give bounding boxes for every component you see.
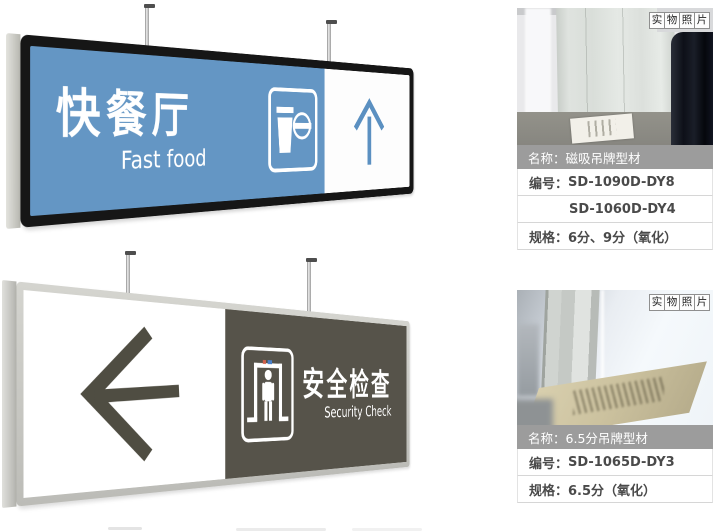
spec-row-code: 编号：SD-1065D-DY3 bbox=[517, 449, 713, 476]
fast-food-sign: 快餐厅 Fast food bbox=[6, 33, 413, 229]
rod-mount-cap bbox=[306, 258, 317, 262]
arrow-panel bbox=[24, 290, 225, 498]
badge-char: 照 bbox=[679, 12, 695, 29]
arrow-panel bbox=[325, 69, 410, 194]
spec-row-code-2: SD-1060D-DY4 bbox=[517, 196, 713, 223]
spec-row-size: 规格：6分、9分（氧化） bbox=[517, 223, 713, 250]
badge-char: 物 bbox=[664, 12, 680, 29]
rod-mount-cap bbox=[125, 251, 136, 255]
spec-label: 规格： bbox=[529, 480, 568, 499]
sign-side-panel bbox=[6, 33, 20, 229]
badge-char: 物 bbox=[664, 294, 680, 311]
fast-food-panel: 快餐厅 Fast food bbox=[30, 46, 325, 216]
badge-char: 实 bbox=[649, 294, 665, 311]
spec-row-name: 名称：磁吸吊牌型材 bbox=[517, 145, 713, 169]
spec-value: 6.5分吊牌型材 bbox=[566, 428, 648, 447]
hanging-rod bbox=[126, 254, 130, 294]
spec-value: 磁吸吊牌型材 bbox=[566, 148, 641, 167]
cropped-shadow bbox=[108, 527, 142, 530]
photo-background bbox=[517, 399, 553, 425]
sign-subtitle-en: Fast food bbox=[54, 147, 206, 176]
spec-value: 6.5分（氧化） bbox=[568, 480, 656, 499]
spec-label: 编号： bbox=[529, 173, 568, 192]
product-photo-1: 实 物 照 片 bbox=[517, 8, 713, 145]
photo-background bbox=[517, 324, 539, 396]
sign-side-panel bbox=[2, 280, 16, 508]
rod-mount-cap bbox=[144, 4, 155, 8]
real-photo-badge: 实 物 照 片 bbox=[650, 294, 710, 311]
product-photo-2: 实 物 照 片 bbox=[517, 290, 713, 425]
spec-value: 6分、9分（氧化） bbox=[568, 227, 677, 246]
sign-frame: 快餐厅 Fast food bbox=[20, 34, 413, 227]
left-arrow-icon bbox=[78, 321, 185, 466]
spec-label: 规格： bbox=[529, 227, 568, 246]
product-card-1: 实 物 照 片 名称：磁吸吊牌型材 编号：SD-1090D-DY8 SD-106… bbox=[517, 8, 713, 250]
badge-char: 实 bbox=[649, 12, 665, 29]
sign-title-cn: 快餐厅 bbox=[56, 88, 193, 142]
sign-title-cn: 安全检查 bbox=[302, 367, 391, 401]
spec-row-size: 规格：6.5分（氧化） bbox=[517, 476, 713, 503]
spec-label: 名称： bbox=[528, 428, 566, 447]
sign-subtitle-en: Security Check bbox=[302, 404, 391, 421]
plate-engraving bbox=[573, 376, 664, 415]
badge-char: 片 bbox=[694, 294, 710, 311]
security-check-sign: 安全检查 Security Check bbox=[2, 280, 409, 508]
spec-row-name: 名称：6.5分吊牌型材 bbox=[517, 425, 713, 449]
badge-char: 照 bbox=[679, 294, 695, 311]
rod-mount-cap bbox=[326, 20, 337, 24]
security-text-block: 安全检查 Security Check bbox=[302, 367, 391, 421]
product-card-2: 实 物 照 片 名称：6.5分吊牌型材 编号：SD-1065D-DY3 规格：6… bbox=[517, 290, 713, 503]
spec-value: SD-1065D-DY3 bbox=[568, 455, 675, 470]
security-panel: 安全检查 Security Check bbox=[225, 309, 407, 479]
spec-label: 编号： bbox=[529, 453, 568, 472]
drink-and-burger-icon bbox=[267, 86, 318, 174]
spec-value: SD-1090D-DY8 bbox=[568, 175, 675, 190]
real-photo-badge: 实 物 照 片 bbox=[650, 12, 710, 29]
spec-value: SD-1060D-DY4 bbox=[529, 202, 676, 217]
photo-highlight bbox=[525, 8, 551, 116]
spec-row-code: 编号：SD-1090D-DY8 bbox=[517, 169, 713, 196]
security-scanner-icon bbox=[240, 344, 294, 444]
badge-char: 片 bbox=[694, 12, 710, 29]
sign-frame: 安全检查 Security Check bbox=[16, 281, 409, 506]
spec-label: 名称： bbox=[528, 148, 566, 167]
sticker-print bbox=[587, 119, 616, 137]
catalog-page: 快餐厅 Fast food bbox=[0, 0, 727, 531]
dark-background-object bbox=[671, 32, 713, 145]
up-arrow-icon bbox=[352, 92, 385, 169]
